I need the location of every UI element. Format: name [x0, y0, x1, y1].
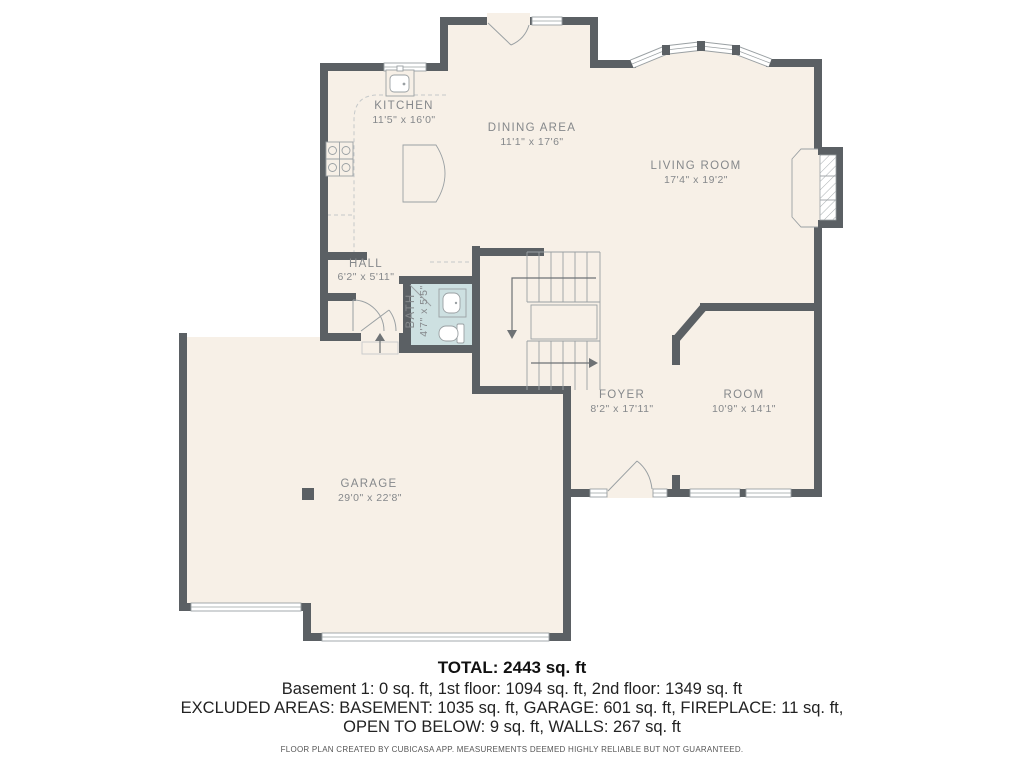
- toilet: [439, 324, 464, 343]
- svg-text:FOYER: FOYER: [599, 389, 645, 401]
- svg-text:11'5" x 16'0": 11'5" x 16'0": [372, 114, 435, 126]
- stove: [326, 142, 353, 176]
- fireplace: [792, 149, 836, 227]
- svg-text:LIVING ROOM: LIVING ROOM: [651, 160, 742, 172]
- svg-text:KITCHEN: KITCHEN: [374, 100, 434, 112]
- svg-text:29'0" x 22'8": 29'0" x 22'8": [338, 492, 402, 504]
- garage-post: [302, 488, 314, 500]
- svg-text:GARAGE: GARAGE: [340, 478, 397, 490]
- stair-void: [531, 305, 597, 339]
- svg-text:4'7" x 5'5": 4'7" x 5'5": [418, 285, 430, 336]
- svg-text:DINING AREA: DINING AREA: [488, 122, 576, 134]
- svg-text:HALL: HALL: [349, 258, 383, 270]
- disclaimer: FLOOR PLAN CREATED BY CUBICASA APP. MEAS…: [0, 745, 1024, 754]
- svg-text:ROOM: ROOM: [724, 389, 765, 401]
- svg-text:8'2" x 17'11": 8'2" x 17'11": [590, 403, 653, 415]
- svg-text:11'1" x 17'6": 11'1" x 17'6": [500, 136, 563, 148]
- floor-plan: KITCHEN 11'5" x 16'0" DINING AREA 11'1" …: [0, 0, 1024, 650]
- kitchen-sink: [386, 66, 414, 96]
- summary-floors: Basement 1: 0 sq. ft, 1st floor: 1094 sq…: [0, 680, 1024, 699]
- dining-nook-window: [532, 17, 562, 25]
- summary-excluded-2: OPEN TO BELOW: 9 sq. ft, WALLS: 267 sq. …: [0, 718, 1024, 737]
- room-windows: [690, 489, 791, 497]
- floor-areas: [183, 21, 839, 637]
- svg-text:6'2" x 5'11": 6'2" x 5'11": [338, 271, 395, 283]
- floor-plan-page: KITCHEN 11'5" x 16'0" DINING AREA 11'1" …: [0, 0, 1024, 768]
- svg-text:10'9" x 14'1": 10'9" x 14'1": [712, 403, 776, 415]
- svg-text:BATH: BATH: [405, 293, 417, 328]
- dining-table: [403, 145, 445, 202]
- summary-excluded-1: EXCLUDED AREAS: BASEMENT: 1035 sq. ft, G…: [0, 699, 1024, 718]
- area-summary: TOTAL: 2443 sq. ft Basement 1: 0 sq. ft,…: [0, 658, 1024, 754]
- summary-total: TOTAL: 2443 sq. ft: [0, 658, 1024, 678]
- svg-text:17'4" x 19'2": 17'4" x 19'2": [664, 174, 728, 186]
